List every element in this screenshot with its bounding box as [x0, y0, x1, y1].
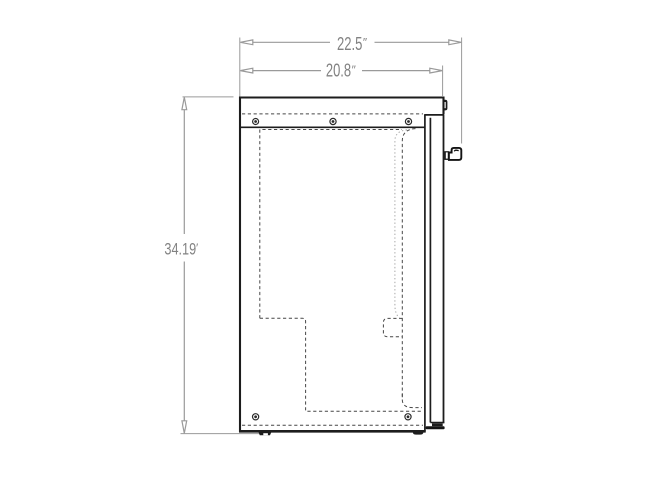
svg-text:″: ″: [363, 36, 368, 50]
svg-text:′: ′: [196, 241, 199, 255]
svg-text:22.5: 22.5: [337, 34, 362, 54]
svg-text:″: ″: [352, 63, 357, 77]
svg-text:20.8: 20.8: [326, 61, 351, 81]
svg-text:34.19: 34.19: [164, 239, 196, 258]
